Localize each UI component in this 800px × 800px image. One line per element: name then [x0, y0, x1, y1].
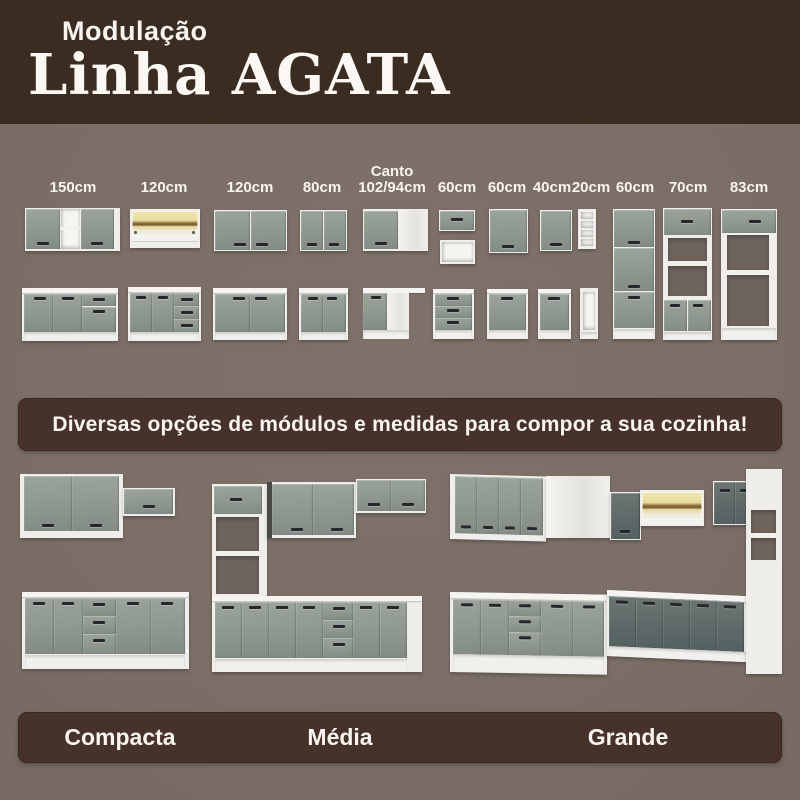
module-tall-oven-tower-70cm — [663, 208, 712, 340]
module-label-40: 40cm — [533, 180, 571, 196]
countertop — [299, 288, 348, 293]
door-handle — [461, 525, 471, 528]
module-open-niche-60cm — [440, 240, 475, 264]
cabinet-door — [453, 599, 481, 654]
module-base-60cm-drawers — [433, 289, 474, 339]
module-shelf-tower-20cm — [578, 209, 596, 249]
module-wall-canto — [363, 209, 428, 251]
door-handle — [230, 498, 242, 501]
door-handle — [308, 297, 318, 300]
drawer-handle — [447, 321, 459, 324]
corner-side-panel — [399, 210, 427, 250]
module-base-120cm-drawers — [128, 287, 201, 341]
media-tall-cabinet — [212, 484, 267, 597]
plinth — [581, 332, 597, 338]
door-handle — [222, 606, 234, 609]
open-compartment — [727, 235, 769, 270]
module-base-120cm — [213, 288, 287, 340]
module-label-canto: Canto 102/94cm — [358, 164, 426, 196]
plinth — [489, 330, 526, 338]
door-handle — [34, 297, 46, 300]
header: Modulação Linha AGATA — [0, 0, 800, 124]
drawer-handle — [447, 309, 459, 312]
door-handle — [360, 606, 372, 609]
open-compartment — [216, 556, 259, 594]
door-handle — [136, 296, 146, 299]
plinth — [614, 329, 654, 338]
door-handle — [307, 243, 317, 246]
module-label-60-tall: 60cm — [616, 180, 654, 196]
media-wall-cabinet — [267, 482, 356, 538]
cabinet-door — [24, 476, 72, 531]
drawer-handle — [519, 620, 531, 623]
door-handle — [628, 296, 640, 299]
door-handle — [327, 297, 337, 300]
door-handle — [551, 605, 563, 608]
drawer-front — [323, 620, 353, 638]
door-handle — [670, 603, 682, 607]
door-handle — [387, 606, 399, 609]
door-handle — [697, 604, 709, 608]
module-base-150cm — [22, 288, 118, 341]
drawer-handle — [519, 636, 531, 639]
cabinet-door — [663, 598, 690, 649]
cubby — [581, 212, 593, 219]
countertop — [433, 289, 474, 293]
module-wall-60cm — [489, 209, 528, 253]
door-handle — [255, 297, 267, 300]
plinth — [540, 330, 569, 338]
compacta-wall-cabinet — [20, 474, 123, 538]
hinge-dot — [192, 231, 195, 234]
module-wall-40cm — [540, 210, 572, 251]
drawer-handle — [447, 297, 459, 300]
module-label-canto-line1: Canto — [358, 164, 426, 180]
size-label-compacta: Compacta — [64, 724, 175, 751]
countertop — [22, 288, 118, 293]
drawer-front — [435, 306, 472, 318]
door-handle — [501, 297, 513, 300]
drawer-front — [83, 616, 116, 634]
open-compartment — [751, 510, 776, 533]
door-handle — [681, 220, 693, 223]
cabinet-door — [690, 600, 717, 651]
door-handle — [628, 285, 640, 288]
plinth — [130, 332, 199, 341]
module-label-120: 120cm — [227, 180, 274, 196]
door-handle — [461, 603, 473, 606]
countertop — [487, 289, 528, 293]
door-handle — [616, 600, 628, 604]
door-handle — [42, 524, 54, 527]
cabinet-door — [242, 602, 269, 658]
module-label-150: 150cm — [50, 180, 97, 196]
door-handle — [256, 243, 268, 246]
door-handle — [643, 602, 655, 606]
door-handle — [724, 605, 736, 609]
cabinet-door — [215, 602, 242, 658]
countertop — [22, 592, 189, 597]
countertop — [212, 596, 422, 601]
corner-side-panel — [387, 293, 409, 332]
drawer-handle — [93, 603, 105, 606]
door-handle — [375, 242, 387, 245]
module-label-83-tall: 83cm — [730, 180, 768, 196]
door-handle — [527, 527, 537, 530]
drawer-handle — [181, 324, 193, 327]
door-handle — [368, 503, 380, 506]
cubby — [581, 230, 593, 237]
promo-banner: Diversas opções de módulos e medidas par… — [18, 398, 782, 451]
compacta-base-cabinet — [22, 592, 189, 669]
shelf — [61, 227, 80, 230]
poster: Modulação Linha AGATA 150cm 120cm 120cm … — [0, 0, 800, 800]
door-handle — [693, 304, 703, 307]
plinth — [25, 655, 185, 667]
drawer-front — [435, 318, 472, 330]
door-handle — [90, 524, 102, 527]
door-handle — [628, 241, 640, 244]
cabinet-door — [481, 600, 509, 655]
open-compartment — [216, 517, 259, 551]
page-title: Linha AGATA — [28, 42, 451, 108]
open-compartment — [668, 266, 707, 296]
grande-glass-cristaleira — [640, 490, 704, 526]
cubby — [581, 221, 593, 228]
door-handle — [233, 297, 245, 300]
cabinet-door — [116, 598, 151, 654]
module-base-40cm — [538, 289, 571, 339]
grande-wall-cabinet-left — [450, 474, 546, 542]
drawer-front — [509, 600, 541, 617]
frame-strip — [642, 520, 702, 524]
module-base-canto — [363, 288, 425, 339]
module-label-60: 60cm — [488, 180, 526, 196]
kitchen-sizes-bar: Compacta Média Grande — [18, 712, 782, 763]
module-wall-150cm — [25, 208, 120, 251]
module-wall-80cm — [300, 210, 347, 251]
plinth — [664, 332, 711, 339]
door-handle — [303, 606, 315, 609]
door-handle — [33, 602, 45, 605]
module-label-60-flip: 60cm — [438, 180, 476, 196]
door-handle — [329, 243, 339, 246]
drawer-handle — [181, 311, 193, 314]
door-handle — [620, 530, 630, 533]
cabinet-door — [717, 601, 744, 652]
module-tall-fridge-surround-83cm — [721, 209, 777, 340]
door-handle — [550, 243, 562, 246]
cabinet-door — [391, 480, 425, 511]
cabinet-door — [573, 601, 604, 657]
module-label-70-tall: 70cm — [669, 180, 707, 196]
door-handle — [451, 218, 463, 221]
door-handle — [371, 296, 381, 299]
drawer-handle — [93, 298, 105, 301]
countertop — [128, 287, 201, 292]
cabinet-door — [353, 602, 380, 658]
door-handle — [234, 243, 246, 246]
door-handle — [489, 604, 501, 607]
door-handle — [93, 310, 105, 313]
grande-tall-cabinet — [746, 469, 782, 674]
drawer-handle — [519, 604, 531, 607]
module-wall-120cm — [214, 210, 287, 251]
grande-base-cabinet-right — [607, 590, 752, 662]
cabinet-door — [296, 602, 323, 658]
grande-wall-dark-cabinet — [610, 492, 641, 540]
plinth — [24, 332, 116, 341]
cabinet-door — [269, 602, 296, 658]
media-base-cabinet — [212, 596, 422, 672]
drawer-front — [323, 602, 353, 620]
door-handle — [749, 220, 761, 223]
grande-base-cabinet-left — [450, 592, 607, 675]
drawer-front — [83, 634, 116, 654]
hinge-dot — [134, 231, 137, 234]
module-label-80: 80cm — [303, 180, 341, 196]
cabinet-door — [54, 598, 83, 654]
media-wall-cabinet-low — [356, 479, 426, 513]
door-handle — [249, 606, 261, 609]
promo-banner-text: Diversas opções de módulos e medidas par… — [52, 413, 747, 437]
plinth — [215, 659, 407, 671]
plinth — [215, 332, 285, 340]
door-handle — [502, 245, 514, 248]
drawer-front — [83, 598, 116, 616]
door-handle — [505, 526, 515, 529]
door-handle — [62, 297, 74, 300]
cubby — [581, 239, 593, 246]
cabinet-door — [380, 602, 407, 658]
drawer-handle — [333, 643, 345, 646]
door-handle — [548, 297, 560, 300]
door-handle — [161, 602, 173, 605]
cabinet-door — [636, 597, 663, 648]
door-handle — [291, 528, 303, 531]
size-label-media: Média — [307, 724, 372, 751]
drawer-handle — [93, 639, 105, 642]
drawer-handle — [333, 607, 345, 610]
size-label-grande: Grande — [588, 724, 669, 751]
open-niche — [442, 242, 473, 262]
cabinet-door — [151, 598, 185, 654]
door-handle — [583, 605, 595, 608]
plinth — [453, 654, 604, 672]
module-wall-120cm-cristaleira — [130, 209, 200, 248]
cabinet-door — [541, 601, 573, 657]
open-compartment — [668, 238, 707, 261]
module-wall-60cm-flip — [439, 210, 475, 231]
door-handle — [37, 242, 49, 245]
module-base-60cm — [487, 289, 528, 339]
door-handle — [402, 503, 414, 506]
plinth — [301, 332, 346, 340]
compacta-wall-cabinet-low — [123, 488, 175, 516]
door-handle — [720, 489, 730, 492]
drawer-front — [435, 294, 472, 306]
drawer-handle — [93, 621, 105, 624]
module-label-20: 20cm — [572, 180, 610, 196]
plinth — [435, 330, 472, 338]
plinth — [363, 330, 409, 339]
open-compartment — [727, 275, 769, 326]
grande-corner-panel — [546, 476, 610, 538]
module-base-80cm — [299, 288, 348, 340]
module-tall-pantry-60cm — [613, 209, 655, 339]
cabinet-door — [357, 480, 391, 511]
door-handle — [331, 528, 343, 531]
door-handle — [62, 602, 74, 605]
plinth — [722, 328, 776, 339]
cabinet-door — [25, 598, 54, 654]
cabinet-door — [609, 596, 636, 647]
drawer-front — [323, 638, 353, 658]
door-handle — [670, 304, 680, 307]
door-handle — [276, 606, 288, 609]
frame-strip — [132, 236, 198, 242]
glass-door — [132, 211, 198, 236]
drawer-handle — [333, 625, 345, 628]
drawer-front — [509, 616, 541, 633]
module-label-canto-line2: 102/94cm — [358, 180, 426, 196]
open-niche — [583, 292, 595, 330]
module-base-20cm-open — [580, 288, 598, 339]
countertop — [213, 288, 287, 293]
cabinet-door — [72, 476, 119, 531]
open-compartment — [751, 538, 776, 560]
door-handle — [127, 602, 139, 605]
glass-door — [642, 492, 702, 520]
countertop — [538, 289, 571, 293]
drawer-handle — [181, 298, 193, 301]
door-handle — [143, 505, 155, 508]
cabinet-door — [124, 489, 173, 514]
door-handle — [91, 242, 103, 245]
module-label-120-glass: 120cm — [141, 180, 188, 196]
door-handle — [483, 526, 493, 529]
door-handle — [158, 296, 168, 299]
